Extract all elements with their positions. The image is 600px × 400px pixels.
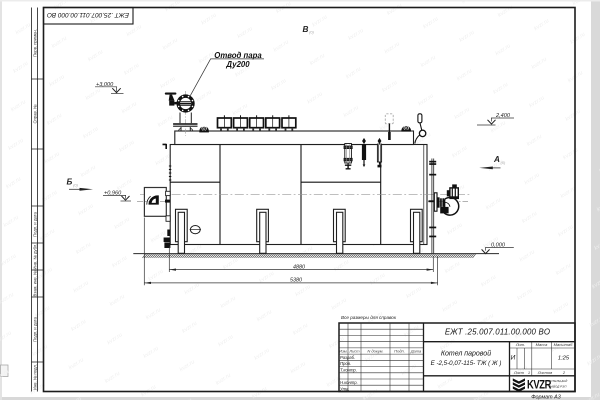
svg-text:Дата: Дата xyxy=(410,349,422,354)
svg-text:Подп. и дата: Подп. и дата xyxy=(32,316,37,341)
svg-text:Ду200: Ду200 xyxy=(225,60,250,69)
svg-text:(0): (0) xyxy=(501,160,507,165)
svg-text:1:25: 1:25 xyxy=(558,356,570,362)
svg-text:Лист: Лист xyxy=(513,370,525,375)
svg-text:Справ. №: Справ. № xyxy=(32,104,37,124)
svg-text:Утв.: Утв. xyxy=(340,386,350,391)
svg-text:ЗАВОД РЭП: ЗАВОД РЭП xyxy=(549,385,567,389)
svg-text:Масштаб: Масштаб xyxy=(554,342,573,347)
svg-text:Котел паровой: Котел паровой xyxy=(441,350,491,358)
svg-text:Н.контр.: Н.контр. xyxy=(340,380,358,385)
svg-text:Лист: Лист xyxy=(348,349,360,354)
svg-text:Масса: Масса xyxy=(536,342,549,347)
svg-text:КОТЕЛЬНЫЙ: КОТЕЛЬНЫЙ xyxy=(548,379,568,383)
svg-text:4880: 4880 xyxy=(293,264,305,270)
svg-text:И: И xyxy=(511,355,516,362)
svg-text:Инв. № подл.: Инв. № подл. xyxy=(32,364,37,390)
svg-text:(0): (0) xyxy=(73,183,79,188)
svg-text:N докум.: N докум. xyxy=(367,349,383,354)
svg-text:Инв. № дубл.: Инв. № дубл. xyxy=(32,244,37,270)
svg-text:Взам. инв. №: Взам. инв. № xyxy=(32,270,37,296)
svg-text:ЕЖТ .25.007.011.00.000 ВО: ЕЖТ .25.007.011.00.000 ВО xyxy=(445,327,550,336)
svg-text:Изм.: Изм. xyxy=(339,349,348,354)
svg-text:Подп. и дата: Подп. и дата xyxy=(32,211,37,236)
svg-text:Перв. примен.: Перв. примен. xyxy=(32,29,37,57)
svg-text:Б: Б xyxy=(67,178,73,187)
svg-text:Разраб.: Разраб. xyxy=(340,355,355,360)
svg-text:5380: 5380 xyxy=(290,278,302,284)
svg-text:Е -2,5-0,07-115- ТЖ ( Ж ): Е -2,5-0,07-115- ТЖ ( Ж ) xyxy=(431,360,502,367)
svg-text:1: 1 xyxy=(528,370,530,375)
svg-text:Лит.: Лит. xyxy=(515,342,525,347)
svg-text:Формат А3: Формат А3 xyxy=(531,395,561,400)
svg-text:В: В xyxy=(303,25,309,34)
svg-text:Все размеры для справок: Все размеры для справок xyxy=(341,315,397,320)
svg-text:Т.контр.: Т.контр. xyxy=(340,368,357,373)
svg-text:А: А xyxy=(493,155,500,164)
svg-text:(0): (0) xyxy=(309,30,315,35)
svg-text:Листов: Листов xyxy=(537,370,553,375)
svg-text:Пров.: Пров. xyxy=(340,361,351,366)
svg-text:Подп.: Подп. xyxy=(394,349,405,354)
svg-text:ЕЖТ .25.007.011.00.000 ВО: ЕЖТ .25.007.011.00.000 ВО xyxy=(47,11,129,18)
